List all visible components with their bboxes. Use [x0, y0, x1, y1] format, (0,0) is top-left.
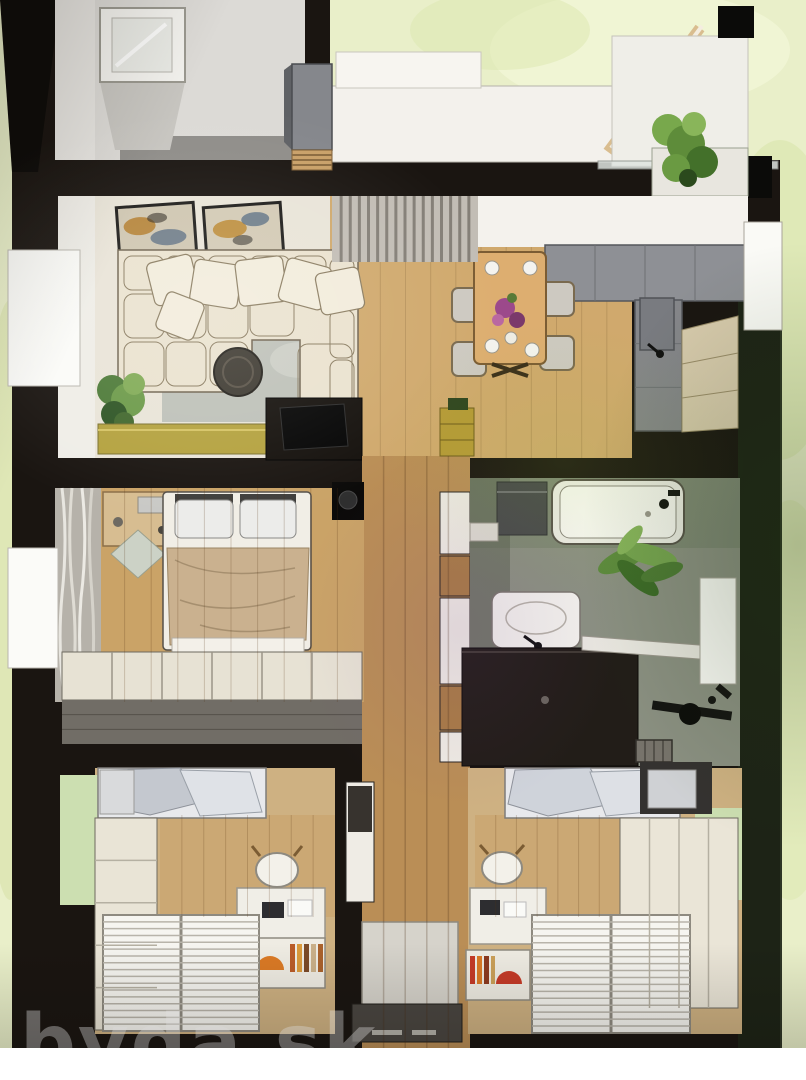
bath-shelf	[470, 523, 498, 541]
coffee-table	[214, 348, 262, 396]
double-bed	[163, 492, 311, 658]
column-cap	[718, 6, 754, 38]
kids-bedroom-left	[60, 768, 335, 1034]
skylight	[100, 8, 185, 150]
vanity-counter	[462, 648, 638, 766]
tv-console	[266, 398, 362, 460]
kidR-tablet	[480, 900, 500, 915]
living-room	[8, 196, 366, 460]
kidR-bookshelf	[466, 950, 530, 1000]
window-left-bottom	[8, 548, 58, 668]
door-mat	[362, 922, 458, 1010]
tall-cabinets	[682, 316, 738, 432]
tv-screen	[280, 404, 348, 450]
entry-path	[330, 86, 622, 162]
kidL-books	[290, 944, 323, 972]
hall-tall-cabinet	[346, 782, 374, 902]
bowl	[505, 332, 517, 344]
bathtub	[552, 480, 684, 544]
entry-bench	[292, 150, 332, 170]
plant-leaf	[679, 169, 697, 187]
watermark-text: byda.sk	[20, 999, 377, 1080]
kitchen-window	[744, 222, 782, 330]
door-threshold	[412, 1030, 436, 1035]
kidL-bookshelf	[255, 938, 325, 988]
bed-blanket	[167, 548, 309, 645]
kids-bedroom-right	[466, 762, 742, 1034]
bed-pillow	[240, 500, 296, 538]
entry-upper-wall	[336, 52, 481, 88]
hallway	[346, 398, 474, 1048]
bathroom-sink	[492, 592, 580, 650]
bathroom-window	[700, 578, 736, 684]
plant-leaf	[682, 112, 706, 136]
kidL-bed	[98, 768, 266, 818]
plate	[525, 343, 539, 357]
vanity-handle	[541, 696, 549, 704]
floorplan-render: byda.sk	[0, 0, 806, 1080]
entry-cabinet	[292, 64, 332, 150]
kitchen-white-wall	[470, 196, 748, 247]
curtain-wall	[332, 196, 478, 262]
tub-drain	[645, 511, 651, 517]
wall-ac-unit	[332, 482, 364, 520]
kidL-green-wall	[60, 775, 100, 905]
floor-drain	[636, 740, 672, 762]
kidR-blinds	[532, 915, 690, 1033]
window-left-top	[8, 250, 80, 386]
kitchen-sink	[640, 298, 674, 350]
plate	[485, 261, 499, 275]
washing-machine	[497, 482, 547, 535]
shelf-plant	[448, 398, 468, 410]
kidR-paper	[504, 902, 526, 917]
bedroom-wardrobe	[62, 652, 362, 744]
kidR-bed	[505, 762, 712, 818]
plate	[485, 339, 499, 353]
tub-faucet	[659, 499, 669, 509]
kidR-pillow	[648, 770, 696, 808]
sideboard	[98, 424, 266, 454]
entrance-wall-left	[55, 0, 95, 160]
kidL-tablet	[262, 902, 284, 918]
tub-handle	[668, 490, 680, 496]
entrance-hall	[55, 0, 305, 160]
entry-cabinet-side	[284, 64, 292, 150]
wall-right-green	[738, 300, 782, 1048]
bathroom	[462, 478, 740, 766]
kidL-pillow	[100, 770, 134, 814]
plate	[523, 261, 537, 275]
